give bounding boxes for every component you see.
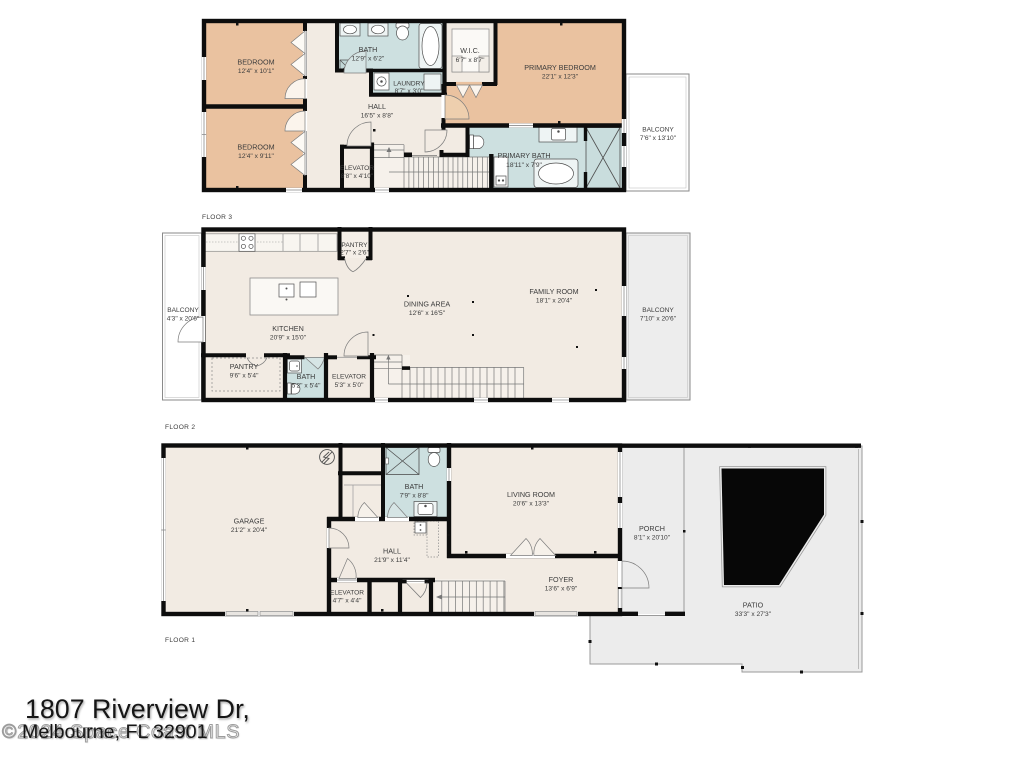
svg-text:PANTRY: PANTRY <box>230 362 259 371</box>
svg-text:PRIMARY BATH: PRIMARY BATH <box>497 151 550 160</box>
svg-text:DINING AREA: DINING AREA <box>404 300 451 309</box>
svg-text:HALL: HALL <box>383 547 401 556</box>
svg-text:BATH: BATH <box>297 372 316 381</box>
svg-text:LIVING ROOM: LIVING ROOM <box>507 490 555 499</box>
svg-text:4'7" x 4'4": 4'7" x 4'4" <box>333 598 362 605</box>
svg-text:18'1" x 20'4": 18'1" x 20'4" <box>536 298 573 305</box>
svg-text:PATIO: PATIO <box>743 601 764 610</box>
svg-text:LAUNDRY: LAUNDRY <box>393 81 425 88</box>
svg-text:20'6" x 13'3": 20'6" x 13'3" <box>513 501 550 508</box>
svg-text:FOYER: FOYER <box>549 575 574 584</box>
svg-text:FAMILY ROOM: FAMILY ROOM <box>529 287 578 296</box>
svg-text:FLOOR 2: FLOOR 2 <box>165 424 195 431</box>
svg-text:6'7" x 8'7": 6'7" x 8'7" <box>456 57 485 64</box>
svg-text:ELEVATOR: ELEVATOR <box>340 165 374 172</box>
svg-text:BALCONY: BALCONY <box>642 307 674 314</box>
svg-text:PRIMARY BEDROOM: PRIMARY BEDROOM <box>524 63 596 72</box>
svg-text:4'3" x 20'6": 4'3" x 20'6" <box>167 316 200 323</box>
svg-text:8'8" x 4'10": 8'8" x 4'10" <box>341 173 374 180</box>
svg-text:13'6" x 6'9": 13'6" x 6'9" <box>545 586 578 593</box>
svg-text:5'3" x 5'0": 5'3" x 5'0" <box>335 382 364 389</box>
svg-text:5'2" x 5'4": 5'2" x 5'4" <box>292 383 321 390</box>
svg-text:BALCONY: BALCONY <box>167 307 199 314</box>
svg-text:PANTRY: PANTRY <box>341 242 368 249</box>
svg-text:ELEVATOR: ELEVATOR <box>330 590 364 597</box>
svg-text:PORCH: PORCH <box>639 524 665 533</box>
svg-text:FLOOR 1: FLOOR 1 <box>165 637 195 644</box>
svg-text:BEDROOM: BEDROOM <box>237 58 274 67</box>
svg-text:BATH: BATH <box>359 45 378 54</box>
svg-text:9'6" x 5'4": 9'6" x 5'4" <box>230 373 259 380</box>
svg-text:2'7" x 2'6": 2'7" x 2'6" <box>340 250 369 257</box>
svg-text:7'6" x 13'10": 7'6" x 13'10" <box>640 135 677 142</box>
svg-text:W.I.C.: W.I.C. <box>460 46 480 55</box>
svg-text:8'7" x 3'0": 8'7" x 3'0" <box>395 88 424 95</box>
svg-text:7'9" x 8'8": 7'9" x 8'8" <box>400 493 429 500</box>
svg-text:KITCHEN: KITCHEN <box>272 324 304 333</box>
svg-text:ELEVATOR: ELEVATOR <box>332 374 366 381</box>
svg-text:16'5" x 8'8": 16'5" x 8'8" <box>361 113 394 120</box>
svg-text:21'9" x 11'4": 21'9" x 11'4" <box>374 557 410 564</box>
svg-text:12'4" x 9'11": 12'4" x 9'11" <box>238 153 274 160</box>
svg-text:12'9" x 6'2": 12'9" x 6'2" <box>352 56 385 63</box>
svg-text:22'1" x 12'3": 22'1" x 12'3" <box>542 74 579 81</box>
svg-text:HALL: HALL <box>368 102 386 111</box>
svg-text:12'4" x 10'1": 12'4" x 10'1" <box>238 68 275 75</box>
svg-text:21'2" x 20'4": 21'2" x 20'4" <box>231 527 268 534</box>
svg-text:33'3" x 27'3": 33'3" x 27'3" <box>735 611 772 618</box>
svg-text:BATH: BATH <box>405 482 424 491</box>
svg-text:8'1" x 20'10": 8'1" x 20'10" <box>634 535 671 542</box>
svg-text:BALCONY: BALCONY <box>642 127 674 134</box>
svg-text:18'11" x 7'9": 18'11" x 7'9" <box>506 162 542 169</box>
svg-text:12'6" x 16'5": 12'6" x 16'5" <box>409 310 446 317</box>
svg-text:FLOOR 3: FLOOR 3 <box>202 214 232 221</box>
svg-text:GARAGE: GARAGE <box>234 517 265 526</box>
svg-text:BEDROOM: BEDROOM <box>237 143 274 152</box>
svg-text:20'9" x 15'0": 20'9" x 15'0" <box>270 335 307 342</box>
svg-text:7'10" x 20'6": 7'10" x 20'6" <box>640 316 677 323</box>
